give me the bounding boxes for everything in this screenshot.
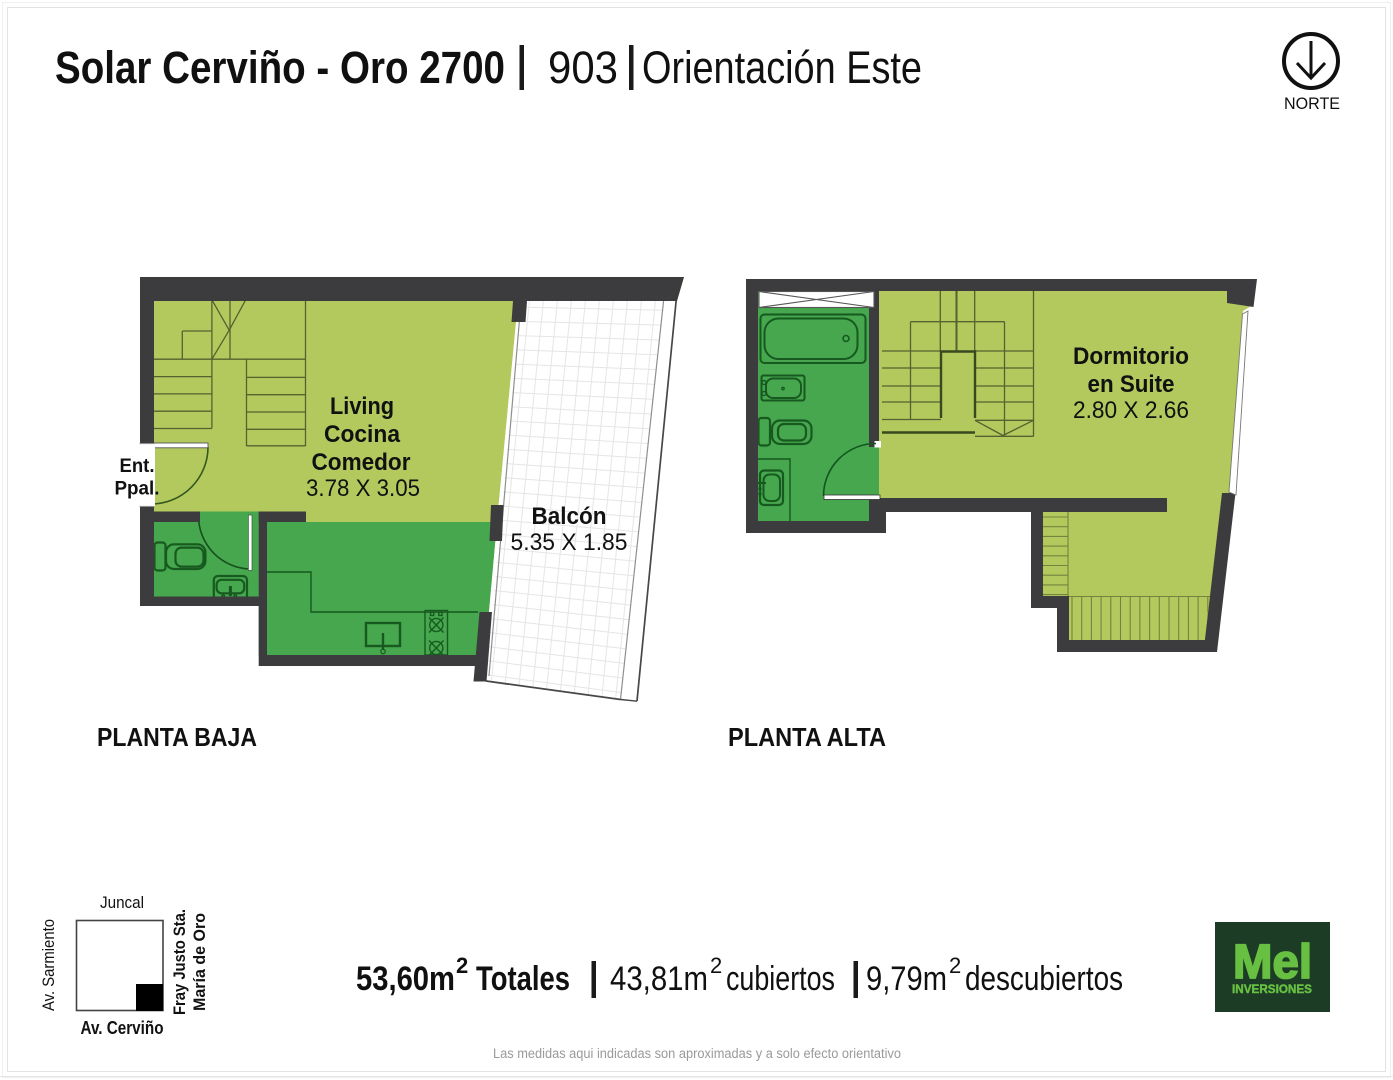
- svg-text:Totales: Totales: [476, 960, 570, 998]
- svg-text:Orientación Este: Orientación Este: [642, 42, 922, 93]
- svg-text:PLANTA BAJA: PLANTA BAJA: [97, 722, 257, 752]
- svg-text:43,81m: 43,81m: [610, 960, 708, 998]
- svg-text:Balcón: Balcón: [532, 503, 607, 530]
- svg-text:Fray Justo Sta.: Fray Justo Sta.: [171, 909, 189, 1015]
- svg-text:Av. Cerviño: Av. Cerviño: [81, 1017, 164, 1038]
- svg-text:Cocina: Cocina: [324, 421, 400, 448]
- svg-text:2: 2: [710, 953, 722, 978]
- svg-text:2: 2: [949, 953, 961, 978]
- svg-text:Comedor: Comedor: [312, 449, 411, 476]
- svg-text:María de Oro: María de Oro: [191, 913, 209, 1011]
- svg-text:NORTE: NORTE: [1284, 95, 1340, 113]
- svg-text:Living: Living: [330, 393, 394, 420]
- svg-text:Mel: Mel: [1233, 936, 1312, 989]
- svg-text:5.35 X 1.85: 5.35 X 1.85: [511, 529, 628, 556]
- svg-text:Ppal.: Ppal.: [115, 479, 160, 500]
- svg-text:Solar Cerviño - Oro 2700: Solar Cerviño - Oro 2700: [55, 42, 505, 93]
- svg-text:INVERSIONES: INVERSIONES: [1232, 984, 1312, 996]
- svg-text:9,79m: 9,79m: [866, 960, 947, 998]
- svg-text:Ent.: Ent.: [120, 456, 155, 477]
- svg-text:53,60m: 53,60m: [356, 960, 455, 998]
- svg-text:cubiertos: cubiertos: [726, 960, 835, 998]
- svg-text:en Suite: en Suite: [1088, 371, 1175, 398]
- svg-text:Dormitorio: Dormitorio: [1073, 343, 1189, 370]
- svg-text:PLANTA ALTA: PLANTA ALTA: [728, 722, 886, 752]
- svg-text:Las medidas aqui indicadas son: Las medidas aqui indicadas son aproximad…: [493, 1046, 901, 1061]
- svg-text:2.80 X 2.66: 2.80 X 2.66: [1073, 397, 1189, 424]
- svg-text:903: 903: [548, 42, 618, 93]
- svg-text:Av. Sarmiento: Av. Sarmiento: [40, 919, 58, 1011]
- svg-text:Juncal: Juncal: [100, 893, 144, 912]
- svg-text:3.78 X 3.05: 3.78 X 3.05: [306, 475, 420, 502]
- svg-text:2: 2: [456, 953, 468, 978]
- svg-text:descubiertos: descubiertos: [965, 960, 1123, 998]
